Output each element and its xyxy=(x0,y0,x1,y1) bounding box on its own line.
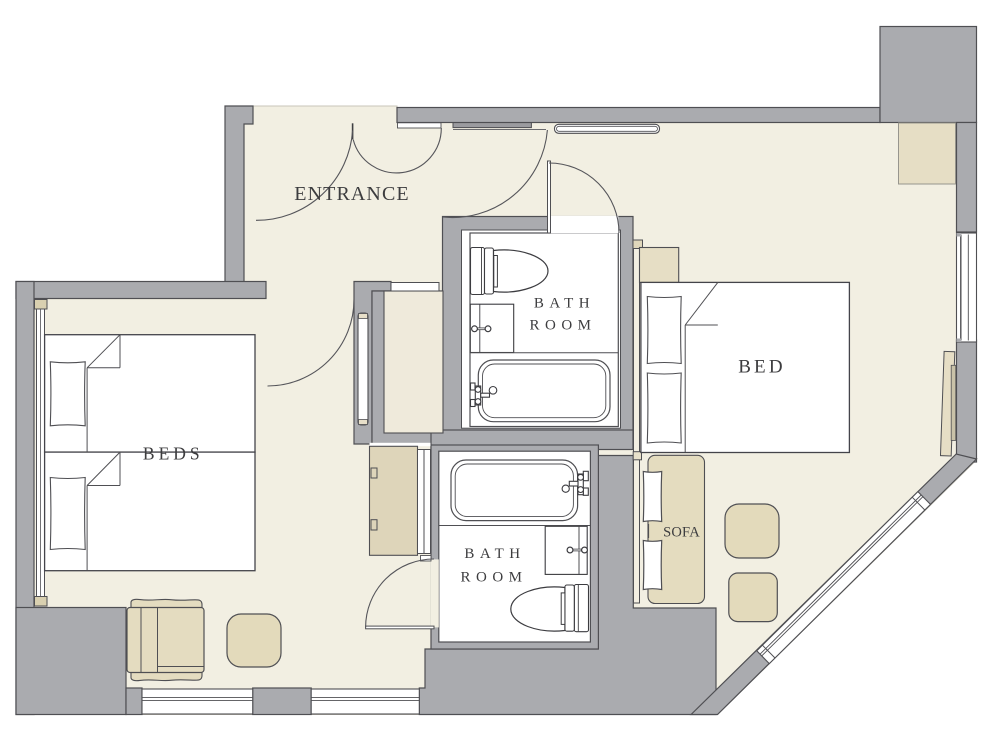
svg-text:BED: BED xyxy=(738,357,786,378)
svg-text:ROOM: ROOM xyxy=(529,318,596,334)
svg-text:ROOM: ROOM xyxy=(460,570,527,586)
svg-text:BATH: BATH xyxy=(534,296,595,312)
svg-text:ENTRANCE: ENTRANCE xyxy=(294,183,409,205)
svg-text:BATH: BATH xyxy=(464,546,525,562)
svg-text:SOFA: SOFA xyxy=(663,525,700,541)
svg-text:BEDS: BEDS xyxy=(143,444,204,464)
